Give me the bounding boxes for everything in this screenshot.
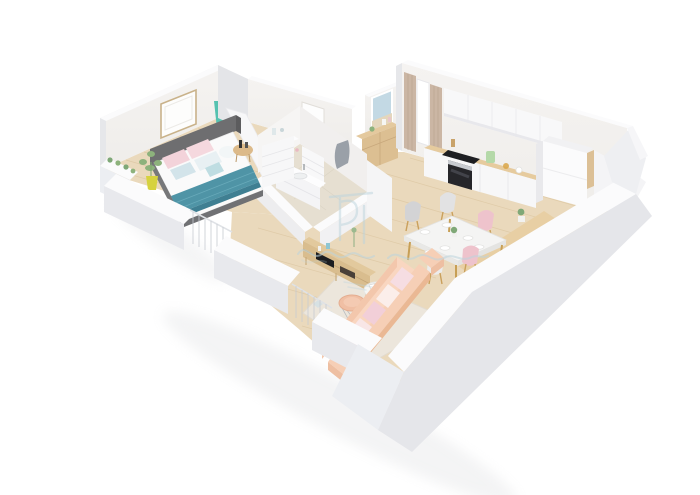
- floorplan-render: 3D isometric apartment floor plan render: [0, 0, 700, 495]
- apartment-scene: [0, 0, 700, 495]
